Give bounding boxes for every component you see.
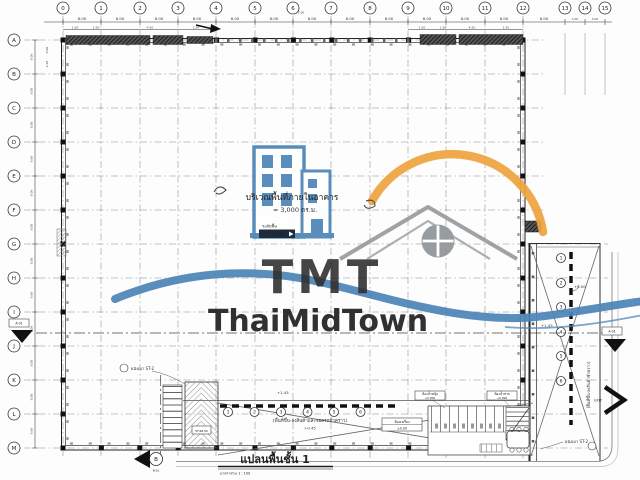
dim-label: 6.00 <box>78 16 87 21</box>
canopy-upper-level: +1.45 <box>277 390 289 395</box>
dim-label: 4.50 <box>469 25 476 29</box>
watermark-initials: TMT <box>262 250 383 304</box>
dim-label: 6.00 <box>540 16 549 21</box>
dim-label: 6.00 <box>30 394 34 401</box>
dim-label: 6.00 <box>461 16 470 21</box>
dim-label: 3.00 <box>572 17 579 21</box>
grid-bubbles-rows: A B C D E F G H I J K L M <box>8 34 20 454</box>
room-tag-level: ±0.00 <box>397 427 407 431</box>
toilet-tag-male: ห้องน้ำชาย +0.000 <box>487 391 517 407</box>
stairs-left <box>163 385 182 448</box>
dim-label: 2.40 <box>45 61 49 68</box>
exit-marker: EXIT <box>594 387 624 413</box>
toilet-tag-male-level: +0.000 <box>497 396 508 400</box>
grid-column-label: 13 <box>562 6 569 12</box>
dock-bay-number: 6 <box>560 379 563 385</box>
dim-label: 1.50 <box>419 25 426 29</box>
ramp: ทางลาด <box>185 382 218 448</box>
dock-bay-number: 4 <box>560 330 563 336</box>
light-wall-right-label: ผนังเบา ST-2 <box>565 439 589 444</box>
dim-label: 3.00 <box>592 17 599 21</box>
north-flow-arrow <box>196 24 221 33</box>
grid-column-label: 4 <box>214 6 218 12</box>
dim-label: 6.00 <box>423 16 432 21</box>
grid-row-label: G <box>12 242 16 248</box>
grid-column-label: 14 <box>582 6 589 12</box>
floor-plan-drawing: 6.00 6.00 6.00 6.00 6.00 6.00 6.00 6.00 … <box>0 0 640 480</box>
section-b-letter: B <box>154 457 158 463</box>
dim-label: 1.50 <box>440 25 447 29</box>
grid-column-label: 7 <box>329 6 333 12</box>
drawing-title: แปลนพื้นชั้น 1 <box>240 451 310 466</box>
dim-label: 6.00 <box>500 16 509 21</box>
side-door-hatch <box>57 229 66 256</box>
toilet-tag-female-level: +0.000 <box>425 396 436 400</box>
grid-row-label: A <box>12 38 16 44</box>
grid-column-label: 11 <box>482 6 489 12</box>
grid-column-label: 1 <box>99 6 103 12</box>
dim-label: 1.50 <box>503 25 510 29</box>
canopy-bay-number: 2 <box>253 410 256 416</box>
toilet-tag-female: ห้องน้ำหญิง +0.000 <box>415 391 445 408</box>
light-wall-callout-right: ผนังเบา ST-2 <box>540 439 596 450</box>
dim-label: 6.00 <box>30 360 34 367</box>
dim-label: 6.00 <box>30 190 34 197</box>
grid-column-label: 5 <box>253 6 257 12</box>
grid-row-label: K <box>12 378 16 384</box>
dim-label: 6.00 <box>30 224 34 231</box>
exit-label: EXIT <box>594 399 603 403</box>
dim-label: 6.00 <box>30 258 34 265</box>
canopy-bay-number: 4 <box>306 410 309 416</box>
grid-row-label: J <box>12 344 15 350</box>
section-marker-a-left: A-01 A <box>9 319 33 343</box>
building-walls <box>57 35 526 451</box>
dock-bay-bubbles: 1 2 3 4 5 6 <box>557 254 566 386</box>
dim-label: 4.50 <box>147 25 154 29</box>
dock-bay-number: 5 <box>560 354 563 360</box>
grid-row-label: D <box>12 140 16 146</box>
dim-label: 6.00 <box>193 16 202 21</box>
dim-label: 1.50 <box>72 25 79 29</box>
dim-label: 6.00 <box>346 16 355 21</box>
dim-label: 6.00 <box>30 156 34 163</box>
dim-label: 0.60 <box>45 47 49 54</box>
section-a-ref: A-01 <box>608 330 615 334</box>
dim-label: 6.00 <box>270 16 279 21</box>
dim-label: 6.00 <box>385 16 394 21</box>
dim-label: 6.00 <box>30 54 34 61</box>
floor-level-caption: ระดับพื้น <box>262 222 277 229</box>
grid-column-label: 3 <box>176 6 180 12</box>
section-b-ref: B-01 <box>153 469 160 473</box>
dim-label: 6.00 <box>155 16 164 21</box>
grid-row-label: F <box>12 208 15 214</box>
canopy-area-level: +0.45 <box>304 426 316 431</box>
grid-column-label: 10 <box>443 6 450 12</box>
dock-level-zero: +0.00 <box>574 284 586 289</box>
floor-level-value: FL. ±0.00 <box>265 232 285 237</box>
dim-label: 6.00 <box>116 16 125 21</box>
room-tag: ห้องเครื่อง ±0.00 <box>382 418 422 431</box>
dim-label: 6.00 <box>308 16 317 21</box>
dock-side-label: (พื้นที่ขึ้น-ลงสินค้าชั่วคราว) <box>584 361 591 408</box>
grid-bubbles-columns: 0 1 2 3 4 5 6 7 8 9 10 11 12 13 14 15 <box>57 2 611 14</box>
drawing-scale-note: มาตราส่วน 1 : 100 <box>220 472 250 476</box>
dim-label: 6.00 <box>30 88 34 95</box>
grid-column-label: 8 <box>368 6 372 12</box>
light-wall-callout-left: ผนังเบา ST-2 <box>120 364 185 384</box>
section-marker-a-right: A-01 A <box>602 327 626 352</box>
title-block: แปลนพื้นชั้น 1 มาตราส่วน 1 : 100 <box>218 451 333 476</box>
canopy-bay-number: 6 <box>359 410 362 416</box>
dim-label: 1.50 <box>93 25 100 29</box>
watermark-sun-arc <box>372 154 543 232</box>
dim-label: 6.00 <box>231 16 240 21</box>
dim-label: 6.00 <box>30 428 34 435</box>
dim-label: 6.00 <box>30 292 34 299</box>
floor-plan-sheet: 6.00 6.00 6.00 6.00 6.00 6.00 6.00 6.00 … <box>0 0 640 480</box>
grid-column-label: 6 <box>291 6 295 12</box>
section-marker-b: B B-01 <box>134 450 163 473</box>
grid-row-label: C <box>12 106 16 112</box>
ramp-label: ทางลาด <box>195 429 207 433</box>
canopy-bay-number: 5 <box>333 410 336 416</box>
interior-area-label: บริเวณพื้นที่ภายในอาคาร <box>246 191 339 203</box>
grid-row-label: M <box>12 446 17 452</box>
grid-column-label: 12 <box>520 6 527 12</box>
grid-column-label: 0 <box>61 6 65 12</box>
dock-bay-number: 1 <box>560 256 563 262</box>
dimension-chain-top: 6.00 6.00 6.00 6.00 6.00 6.00 6.00 6.00 … <box>44 11 612 34</box>
dock-bay-number: 2 <box>560 281 563 287</box>
canopy-bay-number: 3 <box>280 410 283 416</box>
grid-row-label: B <box>12 72 16 78</box>
room-tag-label: ห้องเครื่อง <box>394 419 410 424</box>
grid-column-label: 15 <box>602 6 609 12</box>
grid-column-label: 9 <box>406 6 410 12</box>
canopy-bay-bubbles: 1 2 3 4 5 6 <box>224 408 366 417</box>
grid-row-label: H <box>12 276 16 282</box>
dim-label: 6.00 <box>30 122 34 129</box>
watermark-brand: ThaiMidTown <box>208 304 428 339</box>
canopy-bay-number: 1 <box>227 410 230 416</box>
grid-row-label: E <box>12 174 16 180</box>
grid-column-label: 2 <box>138 6 142 12</box>
canopy-area-label: (พื้นที่ขึ้น-ลงสินค้าและจอดรถชั่วคราว) <box>273 417 347 424</box>
section-a-ref: A-01 <box>15 322 22 326</box>
interior-area-value: ≈ 3,000 ตร.ม. <box>273 206 317 214</box>
light-wall-left-label: ผนังเบา ST-2 <box>131 366 155 371</box>
